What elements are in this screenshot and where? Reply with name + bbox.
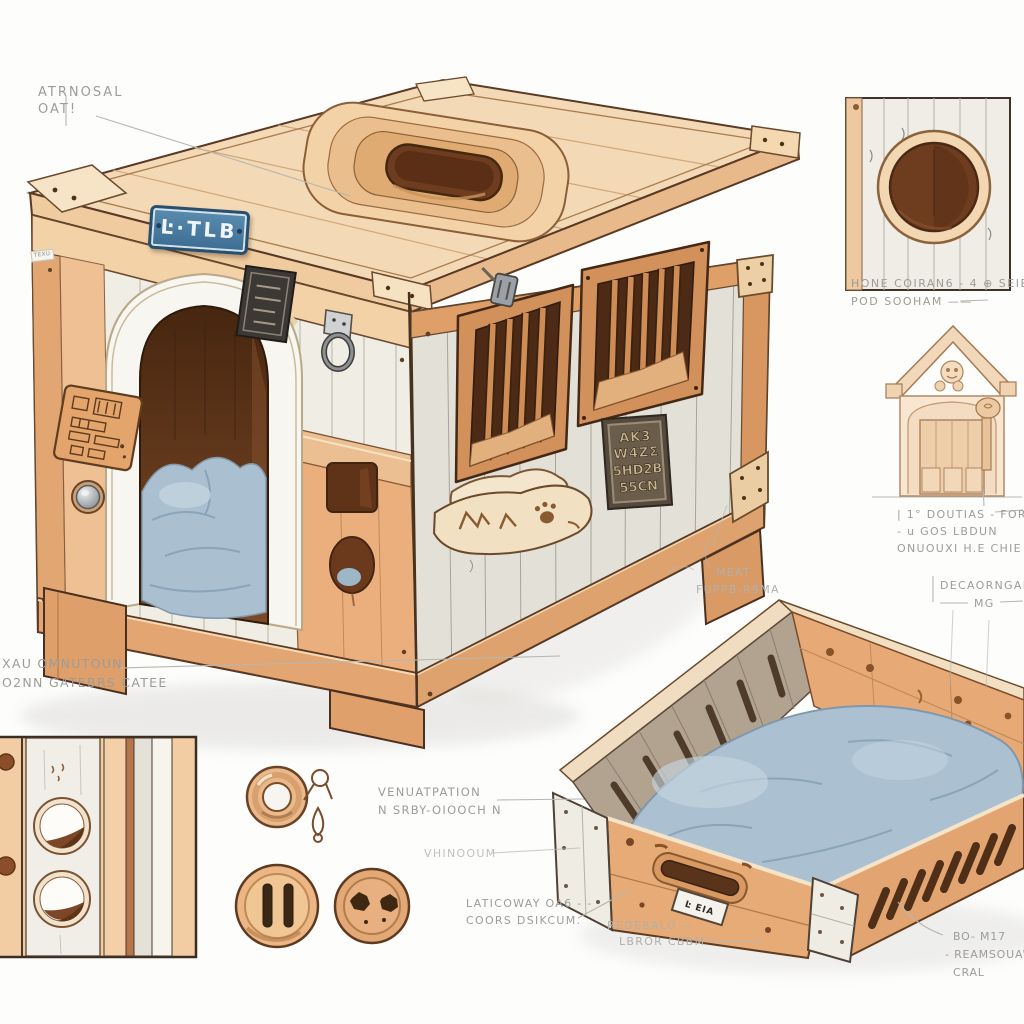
arch-cushion [142,457,266,618]
plank-hole-1 [34,798,90,854]
plank-hole-2 [34,871,90,927]
annotation-line: ATRNOSAL [38,84,123,101]
annotation-line: REDEBALO — [607,918,705,934]
annotation-hole-detail: HONE COIRAN6 - 4 ⊕ SEIE B14 POD SOOHAM —… [851,275,1024,311]
button-slotted [236,865,318,947]
annotation-line: CRAL [945,964,1024,982]
nameplate-text: Ŀ·TLB [160,214,238,243]
annotation-line: DECAORNGAIN [940,577,1024,595]
annotation-line: - u GOS LBDUN [897,523,1024,540]
annotation-line: BO- M17 [945,928,1024,946]
annotation-line: O2NN GATEBRS CATEE [2,673,168,692]
annotation-line: - REAMSOUAWN [945,946,1024,964]
annotation-line: OAT! [38,101,123,118]
detail-hole-panel [846,98,1010,290]
detail-door-facade [872,326,1022,497]
annotation-line: LBROR CBBM [607,934,705,950]
button-paw [335,869,409,943]
stamp-plaque [53,385,143,471]
annotation-line: HONE COIRAN6 - 4 ⊕ SEIE B14 [851,275,1024,293]
annotation-top-left: ATRNOSAL OAT! [38,84,123,118]
design-sketch-canvas: AK3 W4ZΣ 5HD2B 55CN [0,0,1024,1024]
front-lower-panel [292,460,417,673]
annotation-bottom-right: BO- M17 - REAMSOUAWN CRAL [945,928,1024,982]
annotation-line: COORS DSIKCUM. [466,912,593,929]
corner-bracket-top [737,255,773,297]
plate-screw-right [237,229,242,234]
metal-plaque: AK3 W4ZΣ 5HD2B 55CN [602,415,672,509]
plaque-line-2: W4ZΣ [613,444,660,462]
annotation-vhinooum: VHINOOUM [424,845,497,862]
main-house: AK3 W4ZΣ 5HD2B 55CN [28,77,800,748]
knob [72,481,104,513]
annotation-laticoway: LATICOWAY OA6 - - COORS DSIKCUM. [466,895,593,929]
annotation-meat: MEAT FUPPB-R9MA [696,564,780,598]
annotation-redebalo: REDEBALO — LBROR CBBM [607,918,705,950]
annotation-ventilation: VENUATPATION N SRBY-OIOOCH N [378,783,502,819]
annotation-line: XAU OMNUTOUN [2,654,168,673]
window-1 [456,268,573,482]
annotation-door-detail: | 1° DOUTIAS - FOR —— - u GOS LBDUN ONUO… [897,506,1024,557]
plaque-line-1: AK3 [619,429,652,446]
annotation-line: N SRBY-OIOOCH N [378,801,502,819]
wire-pins [304,770,332,842]
detail-plank-holes [0,737,196,957]
annotation-line: VHINOOUM [424,845,497,862]
annotation-line: | 1° DOUTIAS - FOR —— [897,506,1024,523]
plaque-line-4: 55CN [619,479,658,497]
annotation-line: LATICOWAY OA6 - - [466,895,593,912]
dark-plaque [237,266,296,342]
annotation-left-mid: XAU OMNUTOUN O2NN GATEBRS CATEE [2,654,168,692]
annotation-line: MEAT [696,564,780,581]
annotation-line: MG [940,595,1024,613]
annotation-line: VENUATPATION [378,783,502,801]
pet-house-illustration: AK3 W4ZΣ 5HD2B 55CN [0,0,1024,1024]
annotation-line: ONUOUXI H.E CHIE . [897,540,1024,557]
blue-nameplate: Ŀ·TLB [148,205,251,256]
annotation-line: POD SOOHAM —— [851,293,1024,311]
annotation-decor: DECAORNGAIN MG [940,577,1024,613]
window-2 [578,242,709,426]
annotation-line: FUPPB-R9MA [696,581,780,598]
grommet [247,767,307,827]
